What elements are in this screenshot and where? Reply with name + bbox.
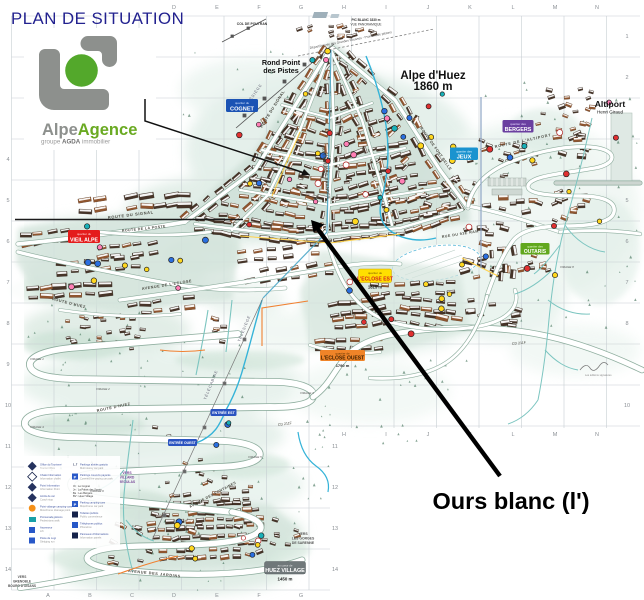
svg-text:13: 13 (332, 526, 338, 532)
svg-text:VIRAGE 4: VIRAGE 4 (30, 425, 44, 429)
svg-text:9: 9 (6, 362, 9, 368)
svg-text:N: N (595, 432, 599, 438)
svg-text:Pedestrians walk: Pedestrians walk (40, 519, 60, 523)
svg-text:Or : Le Cognet: Or : Le Cognet (73, 484, 90, 488)
svg-text:Chalet Information: Chalet Information (40, 473, 62, 477)
svg-text:1..7: 1..7 (73, 463, 78, 467)
svg-text:2: 2 (625, 75, 628, 81)
svg-text:VIRAGE 6: VIRAGE 6 (90, 489, 104, 493)
svg-text:Phonebox: Phonebox (80, 525, 92, 529)
svg-text:Information chalet: Information chalet (40, 477, 61, 481)
svg-text:C: C (130, 593, 134, 599)
svg-text:M: M (553, 5, 558, 11)
svg-text:OUTARIS: OUTARIS (524, 249, 547, 255)
svg-text:A: A (46, 593, 50, 599)
svg-text:RECULAS: RECULAS (119, 480, 136, 484)
svg-text:Altiport: Altiport (595, 99, 626, 109)
svg-text:K: K (468, 5, 472, 11)
svg-text:Ours blanc (l'): Ours blanc (l') (432, 488, 589, 514)
svg-text:Motorhome car park: Motorhome car park (80, 504, 104, 508)
svg-text:ENTRÉE EST: ENTRÉE EST (212, 410, 235, 415)
svg-text:L: L (511, 432, 514, 438)
svg-text:Tourist Office: Tourist Office (40, 466, 56, 470)
svg-text:7: 7 (625, 280, 628, 286)
svg-text:Les éditions signatures: Les éditions signatures (585, 373, 612, 377)
svg-text:13: 13 (5, 526, 11, 532)
svg-text:1790 m: 1790 m (336, 363, 350, 368)
svg-text:Office du Tourisme: Office du Tourisme (40, 463, 62, 467)
svg-text:8: 8 (625, 321, 628, 327)
svg-text:quartier du: quartier du (235, 101, 250, 105)
svg-text:DE SARENNE: DE SARENNE (292, 541, 315, 545)
svg-text:VERS: VERS (18, 575, 27, 579)
svg-text:P: P (74, 474, 77, 479)
svg-text:L'ECLOSE OUEST: L'ECLOSE OUEST (321, 356, 364, 362)
svg-text:14: 14 (332, 567, 338, 573)
svg-text:VERS: VERS (122, 471, 132, 475)
svg-text:1815 m: 1815 m (368, 285, 382, 290)
svg-text:PIC BLANC 3330 m: PIC BLANC 3330 m (351, 18, 380, 22)
svg-text:1860 m: 1860 m (413, 81, 452, 93)
svg-text:D: D (172, 593, 176, 599)
svg-text:1450 m: 1450 m (278, 577, 293, 582)
svg-text:12: 12 (332, 485, 338, 491)
svg-text:COGNET: COGNET (230, 107, 255, 113)
svg-text:Lift: Lift (40, 529, 44, 533)
svg-text:5: 5 (6, 198, 9, 204)
svg-text:B: B (88, 593, 92, 599)
svg-text:LES GORGES: LES GORGES (292, 537, 315, 541)
svg-text:des Pistes: des Pistes (263, 66, 299, 75)
svg-text:au coeur de: au coeur de (278, 563, 293, 567)
svg-text:VIRAGE 3: VIRAGE 3 (300, 391, 314, 395)
svg-text:G: G (299, 5, 303, 11)
svg-text:GRENOBLE: GRENOBLE (13, 580, 31, 584)
svg-text:E: E (215, 5, 219, 11)
svg-text:Information Point: Information Point (40, 487, 60, 491)
svg-text:10: 10 (5, 403, 11, 409)
svg-text:Multi storey car park: Multi storey car park (80, 466, 104, 470)
svg-text:Panneaux d'informations: Panneaux d'informations (80, 532, 109, 536)
svg-text:quartier des: quartier des (510, 122, 526, 126)
svg-text:quartier des: quartier des (527, 245, 543, 249)
svg-text:VUE PANORAMIQUE: VUE PANORAMIQUE (350, 23, 381, 27)
svg-text:Point vidange camping-cars: Point vidange camping-cars (40, 505, 73, 509)
svg-text:BERGERS: BERGERS (505, 127, 532, 133)
svg-text:groupe AGDA immobilier: groupe AGDA immobilier (41, 139, 110, 146)
svg-text:Promenade piétons: Promenade piétons (40, 515, 63, 519)
svg-text:Sledging run: Sledging run (40, 540, 55, 544)
svg-text:6: 6 (6, 239, 9, 245)
svg-text:4: 4 (6, 157, 9, 163)
svg-text:10: 10 (624, 403, 630, 409)
svg-text:14: 14 (5, 567, 11, 573)
svg-text:Point Information: Point Information (40, 484, 60, 488)
svg-text:6: 6 (625, 239, 628, 245)
svg-text:ENTRÉE OUEST: ENTRÉE OUEST (169, 440, 196, 445)
svg-text:H: H (342, 432, 346, 438)
svg-text:7: 7 (6, 280, 9, 286)
svg-text:COL DE POUTRAN: COL DE POUTRAN (237, 22, 268, 26)
svg-text:VIRAGE 8: VIRAGE 8 (560, 265, 574, 269)
svg-text:Henri Giraud: Henri Giraud (597, 110, 623, 115)
svg-text:VILLARD: VILLARD (120, 476, 135, 480)
svg-text:G: G (299, 593, 303, 599)
svg-text:Parkings couverts payants: Parkings couverts payants (80, 473, 111, 477)
svg-text:VIRAGE 1: VIRAGE 1 (30, 357, 44, 361)
svg-text:BV : Huez Village: BV : Huez Village (73, 494, 94, 498)
svg-text:P: P (74, 502, 77, 507)
svg-text:L'ECLOSE EST: L'ECLOSE EST (357, 277, 393, 283)
svg-text:Motorhome drainage point: Motorhome drainage point (40, 508, 71, 512)
svg-text:8: 8 (6, 321, 9, 327)
svg-text:1: 1 (625, 34, 628, 40)
svg-text:HUEZ VILLAGE: HUEZ VILLAGE (265, 568, 305, 574)
svg-text:12: 12 (5, 485, 11, 491)
svg-text:L: L (511, 5, 514, 11)
svg-text:VIRAGE 2: VIRAGE 2 (96, 387, 110, 391)
svg-text:Covered fee-paying car park: Covered fee-paying car park (80, 477, 113, 481)
svg-text:Ascenseur: Ascenseur (40, 526, 52, 530)
svg-text:N: N (595, 5, 599, 11)
svg-text:Public convenience: Public convenience (80, 515, 103, 519)
svg-text:11: 11 (5, 444, 11, 450)
svg-text:quartier du: quartier du (77, 232, 92, 236)
svg-text:VIEIL ALPE: VIEIL ALPE (70, 238, 99, 244)
svg-text:Information panels: Information panels (80, 536, 102, 540)
svg-text:Toilettes publics: Toilettes publics (80, 511, 99, 515)
svg-text:Poste de Lugi: Poste de Lugi (40, 536, 56, 540)
svg-text:Téléphones publics: Téléphones publics (80, 522, 103, 526)
svg-text:11: 11 (332, 444, 338, 450)
svg-text:E: E (215, 593, 219, 599)
svg-text:BOURG D'OISANS: BOURG D'OISANS (8, 584, 36, 588)
svg-text:H: H (342, 5, 346, 11)
svg-text:Arrêts de car: Arrêts de car (40, 494, 55, 498)
svg-text:quartier des: quartier des (456, 150, 472, 154)
svg-text:JEUX: JEUX (457, 155, 472, 161)
svg-text:Parking camping-cars: Parking camping-cars (80, 501, 106, 505)
svg-text:AlpeAgence: AlpeAgence (42, 121, 137, 139)
svg-text:quartier de: quartier de (368, 271, 383, 275)
svg-text:M: M (553, 432, 558, 438)
svg-text:Coach stop: Coach stop (40, 498, 54, 502)
svg-text:5: 5 (625, 198, 628, 204)
svg-text:Parkings abrités gratuits: Parkings abrités gratuits (80, 463, 109, 467)
svg-text:VERS: VERS (298, 532, 308, 536)
svg-text:PLAN DE SITUATION: PLAN DE SITUATION (11, 9, 184, 28)
svg-text:J: J (427, 432, 430, 438)
svg-text:J: J (427, 5, 430, 11)
svg-text:VIRAGE 5: VIRAGE 5 (248, 455, 262, 459)
